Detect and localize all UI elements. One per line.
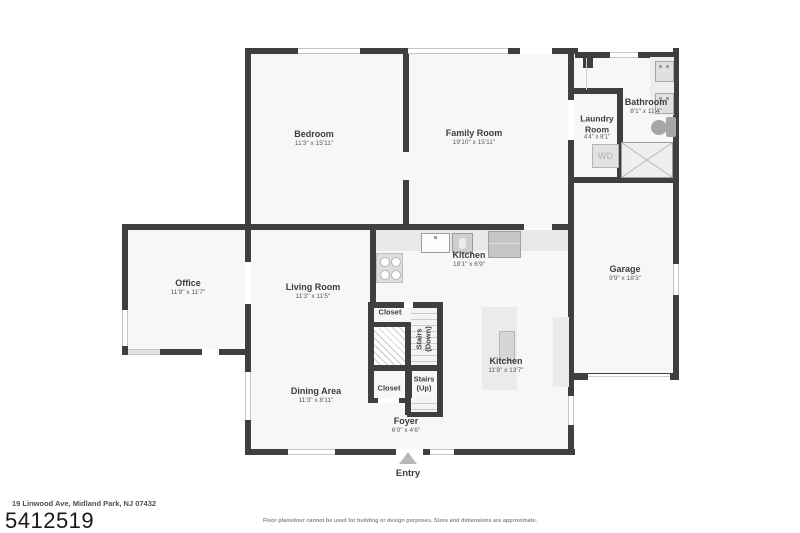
room-name: Office	[171, 278, 206, 289]
closet-label-top: Closet	[379, 307, 402, 316]
burner	[391, 257, 401, 267]
stairs-name: Stairs	[414, 375, 435, 384]
washer-dryer-label: WD	[598, 151, 613, 161]
stairs-direction: (Down)	[424, 326, 433, 351]
room-name: Foyer	[392, 416, 420, 427]
window	[610, 52, 638, 58]
room-name: Dining Area	[291, 386, 341, 397]
room-name: Bathroom	[625, 97, 668, 108]
garage-door-line	[588, 376, 670, 377]
room-dims: 11'3" x 8'11"	[291, 397, 341, 405]
stairs-direction: (Up)	[414, 384, 435, 393]
room-dims: 11'8" x 13'7"	[488, 367, 523, 375]
window	[128, 349, 160, 355]
door-opening	[378, 398, 399, 403]
burner	[391, 270, 401, 280]
wall	[437, 302, 443, 415]
room-label-laundry-room: Laundry Room 4'4" x 8'1"	[572, 113, 622, 142]
garage-door-opening	[588, 374, 670, 380]
room-dims: 8'1" x 11'4"	[625, 108, 668, 116]
room-dims: 19'10" x 15'11"	[446, 139, 503, 147]
faucet-dot	[659, 65, 662, 68]
stairs-up-treads	[411, 398, 437, 412]
stairs-up-label: Stairs (Up)	[414, 375, 435, 394]
faucet-dot	[666, 65, 669, 68]
door-opening	[520, 48, 552, 54]
plan-number: 5412519	[5, 508, 94, 533]
closet-name: Closet	[379, 307, 402, 316]
closet-label-bottom: Closet	[378, 383, 401, 392]
door-swing-line	[586, 58, 587, 90]
stairs-name: Stairs	[415, 326, 424, 351]
room-label-kitchen: Kitchen 18'1" x 6'9"	[452, 250, 485, 270]
toilet-fixture	[666, 117, 676, 137]
room-label-family-room: Family Room 19'10" x 15'11"	[446, 128, 503, 148]
washer-dryer-box: WD	[592, 144, 619, 168]
kitchen-counter	[553, 317, 569, 387]
room-label-bedroom: Bedroom 11'3" x 15'11"	[294, 129, 334, 149]
fridge-fixture	[488, 231, 521, 258]
floor-plan-page: WD Bedroom 11'3" x 15'11" Family Room 19…	[0, 0, 800, 533]
room-label-kitchen-2: Kitchen 11'8" x 13'7"	[488, 356, 523, 376]
disclaimer-text: Floor plans/tour cannot be used for buil…	[263, 518, 537, 524]
toilet-fixture	[651, 120, 667, 135]
rear-door	[568, 396, 574, 425]
room-name: Garage	[609, 264, 641, 275]
closet-name: Closet	[378, 383, 401, 392]
room-name: Kitchen	[452, 250, 485, 261]
room-name: Living Room	[286, 282, 341, 293]
window	[298, 48, 360, 54]
wall	[403, 180, 409, 230]
door-opening	[245, 262, 251, 304]
stairs-down-label: Stairs (Down)	[415, 326, 434, 351]
window	[122, 310, 128, 346]
room-label-office: Office 11'9" x 11'7"	[171, 278, 206, 298]
room-dims: 9'9" x 18'3"	[609, 275, 641, 283]
room-label-foyer: Foyer 6'0" x 4'6"	[392, 416, 420, 436]
room-dims: 11'9" x 11'7"	[171, 289, 206, 297]
bathroom-sink	[655, 61, 674, 82]
window	[408, 48, 508, 54]
room-label-bathroom: Bathroom 8'1" x 11'4"	[625, 97, 668, 117]
room-dims: 11'3" x 11'5"	[286, 293, 341, 301]
cooktop-fixture	[376, 253, 403, 283]
room-label-dining-area: Dining Area 11'3" x 8'11"	[291, 386, 341, 406]
door-opening	[202, 349, 219, 355]
burner	[380, 270, 390, 280]
wall	[403, 48, 409, 152]
stove-burner	[459, 238, 466, 249]
room-name: Laundry Room	[572, 113, 622, 134]
entry-label: Entry	[396, 468, 420, 479]
shower-fixture	[621, 142, 673, 178]
room-dims: 6'0" x 4'6"	[392, 427, 420, 435]
room-name: Bedroom	[294, 129, 334, 140]
window	[430, 449, 454, 455]
room-dims: 4'4" x 8'1"	[572, 135, 622, 143]
burner	[380, 257, 390, 267]
room-dims: 18'1" x 6'9"	[452, 261, 485, 269]
hatched-floor	[374, 327, 405, 365]
window	[245, 372, 251, 420]
fridge-line	[489, 243, 520, 244]
wall	[583, 58, 593, 68]
window	[288, 449, 335, 455]
room-label-garage: Garage 9'9" x 18'3"	[609, 264, 641, 284]
entry-arrow-icon	[399, 452, 417, 464]
room-name: Kitchen	[488, 356, 523, 367]
shower-x-lines	[622, 143, 672, 177]
address-text: 19 Linwood Ave, Midland Park, NJ 07432	[12, 499, 156, 508]
room-label-living-room: Living Room 11'3" x 11'5"	[286, 282, 341, 302]
faucet-dot	[434, 236, 437, 239]
room-dims: 11'3" x 15'11"	[294, 140, 334, 148]
room-name: Family Room	[446, 128, 503, 139]
sink-fixture	[421, 233, 450, 253]
wall	[570, 88, 620, 94]
window	[673, 264, 679, 295]
